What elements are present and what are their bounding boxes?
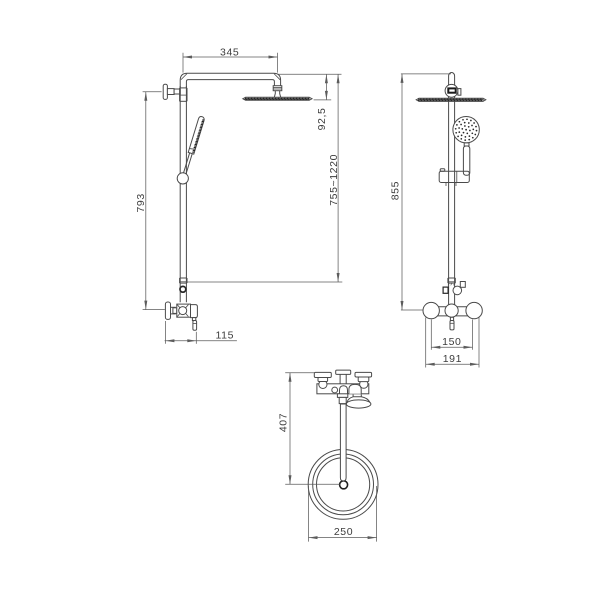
svg-text:191: 191 — [443, 353, 462, 365]
svg-text:115: 115 — [216, 330, 235, 342]
svg-text:92,5: 92,5 — [316, 108, 328, 131]
svg-text:250: 250 — [334, 526, 353, 538]
svg-text:150: 150 — [442, 336, 461, 348]
svg-text:407: 407 — [277, 413, 289, 432]
svg-text:755~1220: 755~1220 — [328, 154, 340, 206]
svg-text:855: 855 — [390, 181, 402, 200]
svg-text:793: 793 — [135, 193, 147, 212]
svg-text:345: 345 — [220, 46, 239, 58]
